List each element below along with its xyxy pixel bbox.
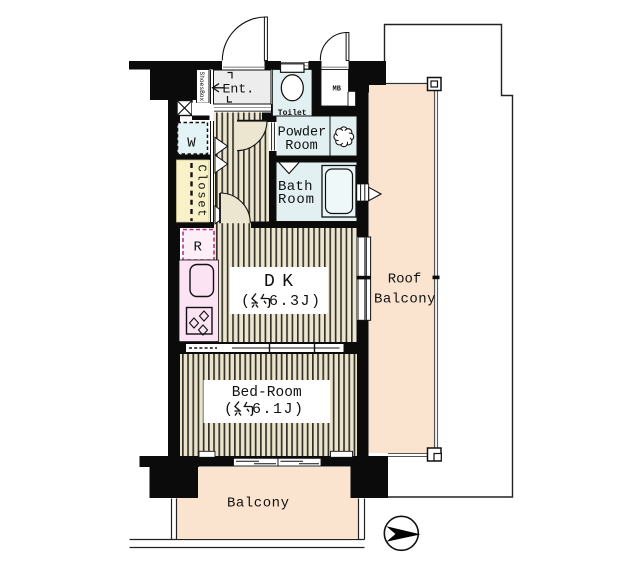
- svg-text:6.1J): 6.1J): [252, 401, 303, 418]
- svg-text:6.3J): 6.3J): [269, 293, 320, 310]
- svg-text:Room: Room: [285, 139, 317, 154]
- svg-text:Balcony: Balcony: [374, 292, 436, 308]
- svg-text:Room: Room: [278, 192, 314, 208]
- svg-text:Balcony: Balcony: [227, 496, 289, 512]
- svg-text:D K: D K: [264, 272, 293, 292]
- svg-text:(: (: [224, 401, 233, 418]
- svg-text:W: W: [187, 136, 196, 152]
- svg-text:Roof: Roof: [388, 272, 422, 288]
- svg-text:(: (: [241, 293, 250, 310]
- svg-text:ShoesBox: ShoesBox: [198, 72, 205, 102]
- svg-text:R: R: [194, 240, 203, 256]
- svg-text:Ent.: Ent.: [223, 81, 255, 96]
- svg-text:MB: MB: [333, 86, 342, 94]
- svg-text:Bed-Room: Bed-Room: [232, 385, 302, 401]
